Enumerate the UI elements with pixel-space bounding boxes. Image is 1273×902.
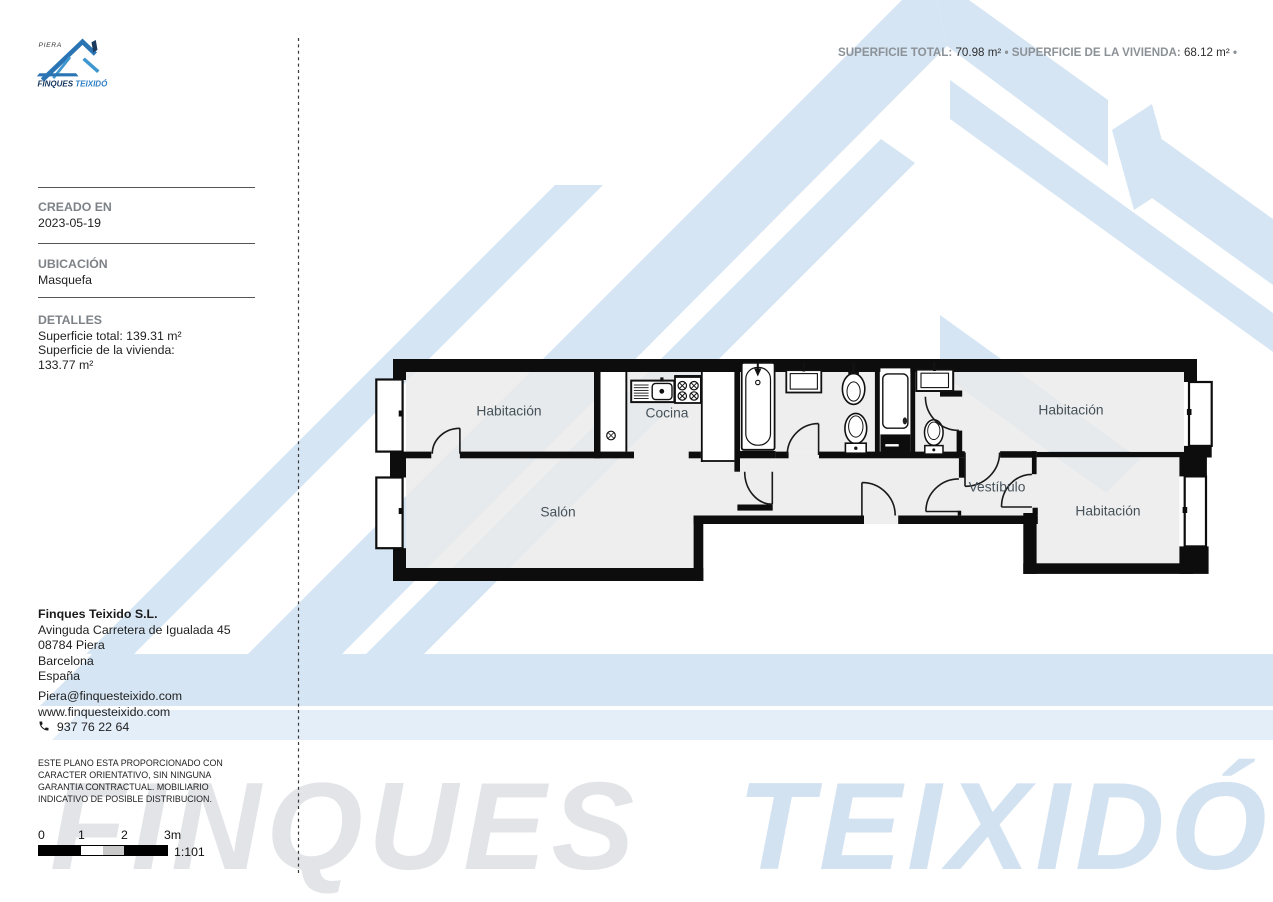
svg-text:Salón: Salón [540,505,575,520]
svg-text:FINQUES TEIXIDÓ: FINQUES TEIXIDÓ [50,758,1272,896]
svg-text:Vestíbulo: Vestíbulo [969,480,1026,495]
svg-text:Habitación: Habitación [1038,403,1103,418]
svg-text:Cocina: Cocina [646,406,689,421]
svg-text:Habitación: Habitación [1075,504,1140,519]
svg-text:PIERA: PIERA [39,42,62,49]
svg-text:Habitación: Habitación [476,404,541,419]
svg-text:FINQUES TEIXIDÓ: FINQUES TEIXIDÓ [38,80,109,89]
